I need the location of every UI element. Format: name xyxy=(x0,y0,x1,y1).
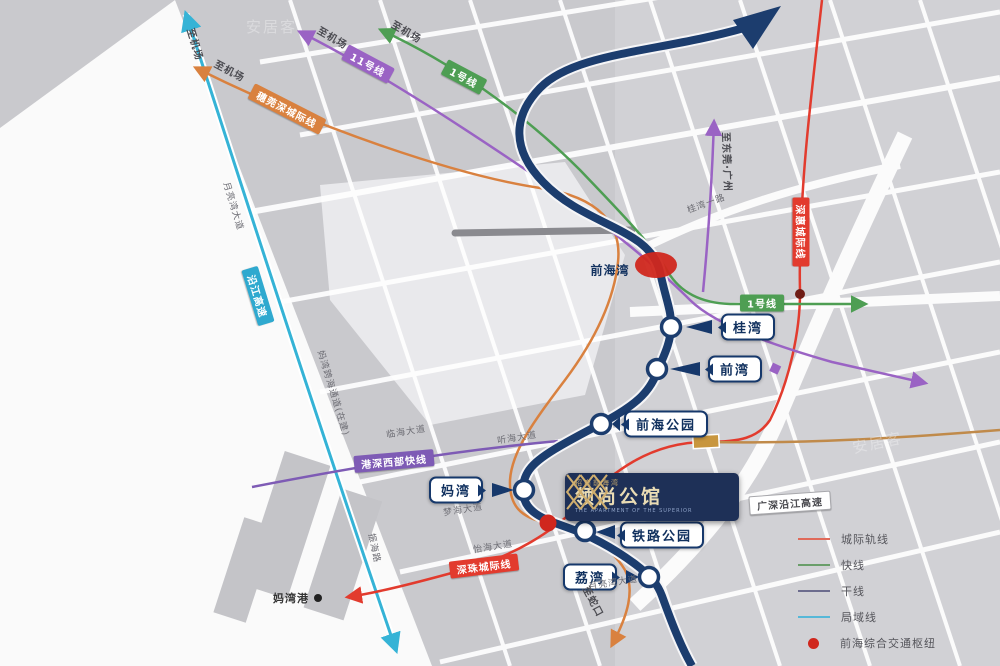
direction-label: 至机场 xyxy=(212,56,248,85)
road-label: 听海大道 xyxy=(496,427,538,446)
line-badge: 1号线 xyxy=(441,59,488,95)
place-label: 前海湾 xyxy=(590,262,629,279)
map-canvas[interactable]: 桂湾前湾前海公园妈湾铁路公园荔湾11号线1号线穗莞深城际线深惠城际线1号线港深西… xyxy=(0,0,1000,666)
station-label: 铁路公园 xyxy=(620,522,704,549)
legend-line-swatch xyxy=(798,564,830,566)
line-badge: 深惠城际线 xyxy=(793,198,810,267)
legend-item: 局域线 xyxy=(798,604,998,630)
line-badge: 沿江高速 xyxy=(241,266,274,326)
station-label: 前湾 xyxy=(708,356,762,383)
road-label: 振海路 xyxy=(366,532,385,564)
line-badge: 11号线 xyxy=(341,44,395,83)
legend-label: 干线 xyxy=(841,583,865,599)
direction-label: 至机场 xyxy=(184,26,208,62)
legend-label: 前海综合交通枢纽 xyxy=(840,635,936,651)
map-legend: 城际轨线快线干线局域线前海综合交通枢纽 xyxy=(798,526,998,656)
legend-item: 前海综合交通枢纽 xyxy=(798,630,998,656)
project-logo-icon xyxy=(565,473,611,511)
road-label: 妈湾跨海通道(在建) xyxy=(315,349,353,438)
legend-label: 局域线 xyxy=(841,609,877,625)
road-label: 月亮湾大道 xyxy=(220,180,247,232)
legend-dot-swatch xyxy=(808,638,819,649)
legend-line-swatch xyxy=(798,538,830,540)
legend-item: 城际轨线 xyxy=(798,526,998,552)
line-badge: 1号线 xyxy=(740,295,784,312)
project-logo-badge: 招商前海湾 领尚公馆 THE APARTMENT OF THE SUPERIOR xyxy=(565,473,739,521)
legend-line-swatch xyxy=(798,616,830,618)
line-badge: 穗莞深城际线 xyxy=(248,83,327,134)
legend-item: 干线 xyxy=(798,578,998,604)
road-label: 临海大道 xyxy=(385,421,427,440)
place-label: 妈湾港 xyxy=(273,590,309,606)
road-label: 桂湾一路 xyxy=(685,190,727,216)
direction-label: 至机场 xyxy=(315,22,351,51)
legend-line-swatch xyxy=(798,590,830,592)
station-label: 桂湾 xyxy=(721,314,775,341)
direction-label: 至机场 xyxy=(389,16,425,45)
station-label: 前海公园 xyxy=(624,411,708,438)
line-badge: 港深西部快线 xyxy=(353,449,434,473)
legend-label: 快线 xyxy=(841,557,865,573)
legend-label: 城际轨线 xyxy=(841,531,889,547)
road-label: 怡海大道 xyxy=(472,536,514,555)
line-badge: 深珠城际线 xyxy=(449,553,520,578)
line-badge: 广深沿江高速 xyxy=(748,491,831,516)
legend-item: 快线 xyxy=(798,552,998,578)
direction-label: 至东莞·广州 xyxy=(719,132,736,192)
